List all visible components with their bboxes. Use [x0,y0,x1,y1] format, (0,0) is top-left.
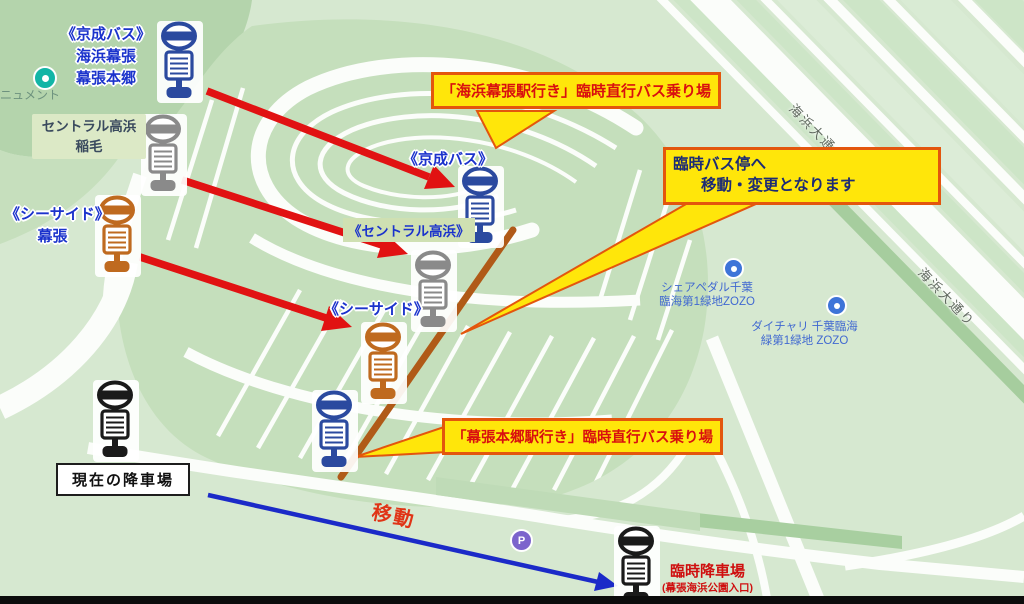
seaside-map-label: 《シーサイド》 [324,299,429,321]
callout-temp-stop: 臨時バス停へ 移動・変更となります [663,147,941,205]
bus-stop-icon-temp-dropoff [614,526,660,604]
central-map-label: 《セントラル高浜》 [343,218,475,242]
seaside-origin-label: 《シーサイド》 幕張 [5,204,100,248]
bus-stop-sign-icon [361,322,405,402]
bus-stop-icon-current-dropoff [93,380,139,462]
callout-tail-temp-stop [461,196,774,334]
temp-dropoff-label: 臨時降車場 (幕張海浜公園入口) [662,562,753,595]
central-origin-label: セントラル高浜 稲毛 [32,114,146,159]
keisei-origin-label: 《京成バス》 海浜幕張 幕張本郷 [50,24,162,89]
bottom-black-bar [0,596,1024,604]
bus-stop-icon-keisei-origin [157,21,203,103]
callout-kaihin-makuhari: 「海浜幕張駅行き」臨時直行バス乗り場 [431,72,721,109]
bus-stop-icon-hongo-new [312,390,358,472]
annotated-bus-map: ニュメント シェアペダル千葉 臨海第1緑地ZOZO ダイチャリ 千葉臨海 緑第1… [0,0,1024,604]
callout-tail-kaihin [477,111,554,148]
current-dropoff-label: 現在の降車場 [56,463,190,496]
keisei-map-label: 《京成バス》 [403,149,493,171]
red-arrow-1-shaft [207,91,429,177]
bus-stop-sign-icon [157,21,201,101]
bus-stop-sign-icon [614,526,658,604]
red-arrow-3-shaft [140,257,326,318]
bus-stop-icon-seaside-new [361,322,407,404]
bus-stop-sign-icon [93,380,137,460]
callout-makuhari-hongo: 「幕張本郷駅行き」臨時直行バス乗り場 [442,418,723,455]
bus-stop-sign-icon [141,114,185,194]
bus-stop-sign-icon [312,390,356,470]
bus-stop-icon-central-origin [141,114,187,196]
